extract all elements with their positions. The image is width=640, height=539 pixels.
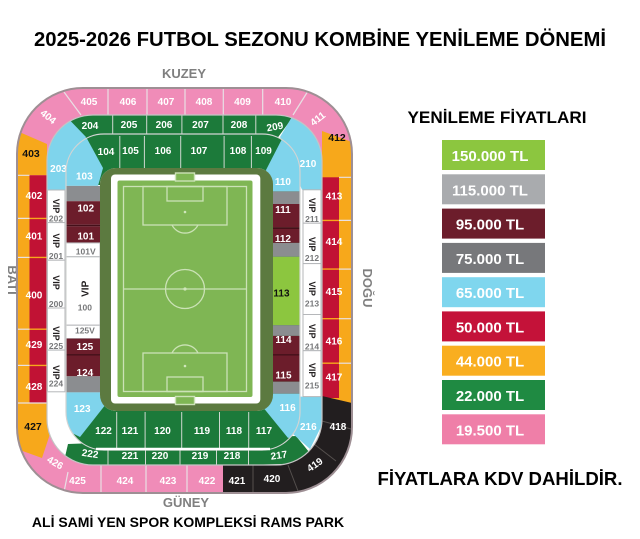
svg-text:219: 219 (192, 451, 209, 462)
svg-text:423: 423 (160, 476, 177, 487)
svg-text:114: 114 (275, 335, 292, 346)
svg-text:VIP: VIP (51, 365, 61, 380)
svg-text:420: 420 (264, 474, 281, 485)
svg-text:101: 101 (77, 232, 94, 243)
svg-text:123: 123 (74, 404, 91, 415)
svg-text:202: 202 (49, 214, 63, 224)
svg-text:115: 115 (275, 371, 292, 382)
svg-text:427: 427 (24, 421, 42, 433)
svg-text:105: 105 (122, 146, 139, 157)
svg-text:122: 122 (95, 426, 112, 437)
svg-text:414: 414 (326, 237, 343, 248)
svg-text:220: 220 (152, 451, 169, 462)
svg-text:418: 418 (330, 422, 347, 433)
svg-text:VIP: VIP (307, 363, 317, 378)
svg-text:50.000 TL: 50.000 TL (456, 319, 524, 336)
svg-text:19.500 TL: 19.500 TL (456, 422, 524, 439)
svg-text:125V: 125V (75, 326, 95, 336)
svg-text:206: 206 (156, 120, 173, 131)
svg-text:FİYATLARA KDV DAHİLDİR.: FİYATLARA KDV DAHİLDİR. (378, 469, 623, 489)
svg-text:110: 110 (275, 177, 292, 188)
svg-text:410: 410 (275, 97, 292, 108)
svg-text:207: 207 (192, 120, 209, 131)
svg-text:400: 400 (26, 291, 43, 302)
svg-text:VIP: VIP (307, 198, 317, 213)
svg-text:425: 425 (69, 476, 86, 487)
svg-text:403: 403 (22, 148, 40, 160)
svg-text:2025-2026 FUTBOL SEZONU KOMBİN: 2025-2026 FUTBOL SEZONU KOMBİNE YENİLEME… (34, 28, 606, 51)
svg-text:VIP: VIP (51, 326, 61, 341)
svg-text:208: 208 (231, 120, 248, 131)
svg-text:102: 102 (77, 204, 94, 215)
svg-text:217: 217 (270, 449, 288, 462)
svg-text:112: 112 (275, 234, 292, 245)
svg-text:YENİLEME FİYATLARI: YENİLEME FİYATLARI (408, 108, 587, 127)
svg-text:75.000 TL: 75.000 TL (456, 251, 524, 268)
svg-text:218: 218 (224, 451, 241, 462)
svg-text:44.000 TL: 44.000 TL (456, 354, 524, 371)
svg-text:424: 424 (117, 476, 134, 487)
svg-text:100: 100 (78, 303, 92, 313)
svg-text:429: 429 (26, 340, 43, 351)
svg-text:109: 109 (255, 146, 272, 157)
svg-text:VIP: VIP (307, 281, 317, 296)
svg-text:203: 203 (50, 164, 67, 175)
svg-text:402: 402 (26, 191, 43, 202)
svg-text:116: 116 (280, 403, 297, 414)
svg-text:117: 117 (256, 426, 273, 437)
svg-text:412: 412 (328, 132, 346, 144)
svg-text:104: 104 (98, 147, 115, 158)
svg-text:210: 210 (300, 159, 317, 170)
svg-text:224: 224 (49, 379, 63, 389)
svg-text:120: 120 (154, 426, 171, 437)
svg-text:125: 125 (77, 342, 94, 353)
svg-text:150.000 TL: 150.000 TL (452, 148, 529, 165)
svg-text:212: 212 (305, 253, 319, 263)
svg-text:216: 216 (300, 422, 317, 433)
svg-text:VIP: VIP (81, 280, 92, 296)
svg-text:416: 416 (326, 336, 343, 347)
svg-text:VIP: VIP (51, 233, 61, 248)
svg-text:215: 215 (305, 381, 319, 391)
svg-text:95.000 TL: 95.000 TL (456, 217, 524, 234)
svg-text:101V: 101V (76, 246, 96, 256)
svg-text:413: 413 (326, 192, 343, 203)
svg-text:200: 200 (49, 299, 63, 309)
svg-text:211: 211 (305, 214, 319, 224)
svg-text:421: 421 (229, 476, 246, 487)
svg-text:115.000 TL: 115.000 TL (452, 182, 528, 199)
svg-text:111: 111 (275, 205, 291, 216)
svg-text:124: 124 (77, 368, 94, 379)
svg-text:VIP: VIP (307, 237, 317, 252)
svg-text:401: 401 (26, 232, 43, 243)
svg-text:407: 407 (158, 97, 175, 108)
svg-text:406: 406 (120, 97, 137, 108)
svg-text:VIP: VIP (51, 199, 61, 214)
svg-text:118: 118 (226, 426, 243, 437)
svg-text:204: 204 (82, 121, 99, 132)
svg-text:DOĞU: DOĞU (360, 269, 375, 308)
svg-text:409: 409 (234, 97, 251, 108)
svg-text:119: 119 (194, 426, 211, 437)
svg-text:415: 415 (326, 287, 343, 298)
svg-text:422: 422 (199, 476, 216, 487)
svg-text:121: 121 (122, 426, 139, 437)
svg-text:113: 113 (273, 289, 290, 300)
svg-text:428: 428 (26, 382, 43, 393)
svg-text:221: 221 (122, 451, 139, 462)
svg-text:106: 106 (155, 146, 172, 157)
svg-text:201: 201 (49, 251, 63, 261)
svg-text:ALİ SAMİ YEN SPOR KOMPLEKSİ RA: ALİ SAMİ YEN SPOR KOMPLEKSİ RAMS PARK (32, 514, 344, 530)
svg-text:205: 205 (121, 120, 138, 131)
svg-text:103: 103 (76, 172, 93, 183)
svg-text:65.000 TL: 65.000 TL (456, 285, 524, 302)
svg-text:KUZEY: KUZEY (162, 66, 206, 81)
svg-text:225: 225 (49, 341, 63, 351)
svg-text:405: 405 (81, 97, 98, 108)
svg-text:408: 408 (196, 97, 213, 108)
svg-text:VIP: VIP (307, 324, 317, 339)
svg-text:22.000 TL: 22.000 TL (456, 388, 524, 405)
svg-text:213: 213 (305, 298, 319, 308)
svg-text:214: 214 (305, 342, 319, 352)
svg-text:417: 417 (326, 373, 343, 384)
svg-text:VIP: VIP (51, 275, 61, 290)
svg-text:GÜNEY: GÜNEY (163, 495, 210, 510)
svg-text:108: 108 (230, 146, 247, 157)
svg-text:107: 107 (191, 146, 208, 157)
